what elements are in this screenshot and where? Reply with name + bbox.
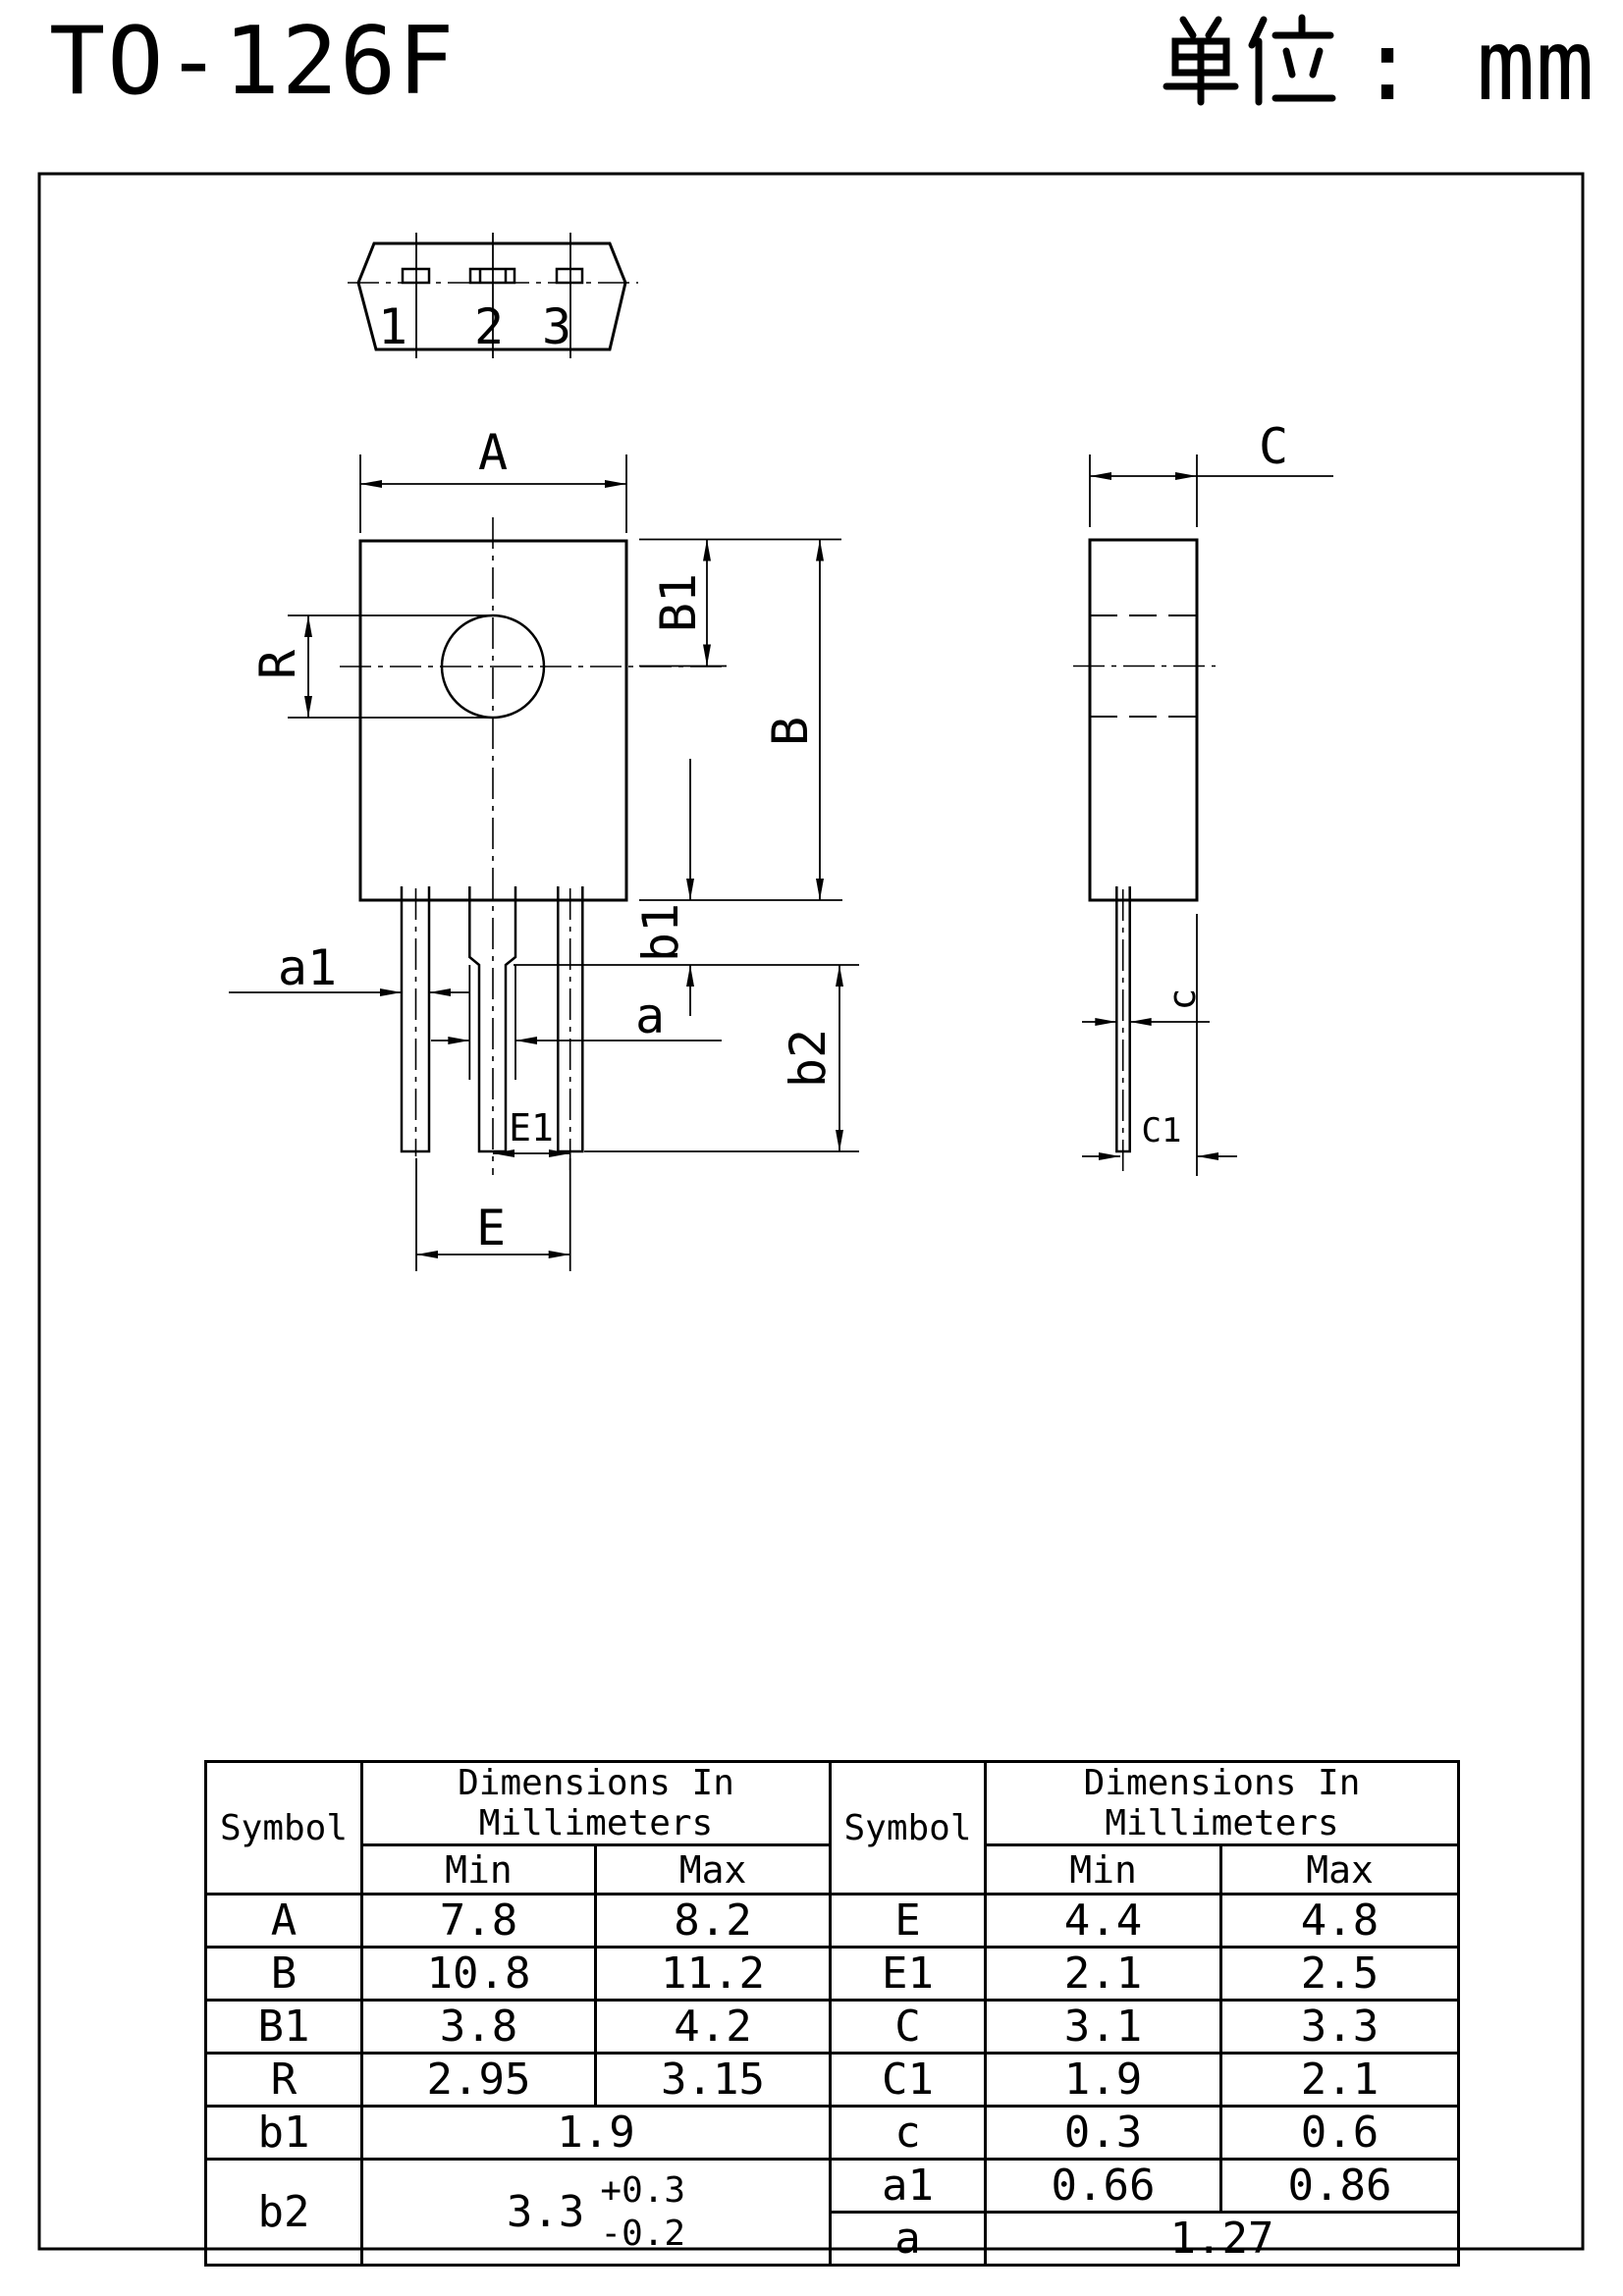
symbol-cell: A [206,1895,362,1948]
b2-tol-plus: +0.3 [600,2169,685,2212]
pin-2-number: 2 [474,298,504,355]
max-cell: 4.2 [596,2001,831,2054]
dim-a1: a1 [229,939,469,996]
table-header-row-1: Symbol Dimensions In Millimeters Symbol … [206,1762,1459,1845]
min-cell: 2.1 [986,1948,1221,2001]
max-cell: 3.3 [1221,2001,1459,2054]
pin-1-number: 1 [378,298,407,355]
max-cell: 11.2 [596,1948,831,2001]
table-row: R 2.95 3.15 C1 1.9 2.1 [206,2054,1459,2107]
top-view: 1 2 3 [348,233,638,358]
min-cell: 3.1 [986,2001,1221,2054]
dim-B1: B1 [639,540,841,667]
value-cell-b2: 3.3 +0.3 -0.2 [362,2160,831,2266]
dim-E-label: E [476,1200,506,1256]
b2-tol-minus: -0.2 [600,2213,685,2255]
min-cell: 1.9 [986,2054,1221,2107]
max-cell: 0.86 [1221,2160,1459,2213]
dim-E: E [416,1158,570,1271]
min-cell: 7.8 [362,1895,596,1948]
pin-3-number: 3 [542,298,571,355]
dim-C: C [1090,418,1333,527]
dim-a-label: a [635,988,665,1044]
dim-a: a [431,965,722,1080]
min-cell: 0.3 [986,2107,1221,2160]
front-view: A R B1 B [229,424,859,1271]
dim-A: A [360,424,626,533]
dim-b1: b1 [514,759,859,1016]
min-cell: 4.4 [986,1895,1221,1948]
dim-b1-label: b1 [632,903,689,962]
symbol-header-left: Symbol [206,1762,362,1895]
dim-c-label: c [1161,988,1204,1011]
max-cell: 0.6 [1221,2107,1459,2160]
min-cell: 0.66 [986,2160,1221,2213]
symbol-cell: b2 [206,2160,362,2266]
max-header-left: Max [596,1845,831,1895]
side-view: C c C1 [1073,418,1333,1176]
max-cell: 8.2 [596,1895,831,1948]
dim-A-label: A [478,424,508,481]
min-cell: 2.95 [362,2054,596,2107]
symbol-cell: B [206,1948,362,2001]
dim-C-label: C [1259,418,1288,475]
dim-a1-label: a1 [278,939,337,996]
dim-B-label: B [762,717,819,746]
dims-header-right: Dimensions In Millimeters [986,1762,1459,1845]
symbol-cell: R [206,2054,362,2107]
table-row: B 10.8 11.2 E1 2.1 2.5 [206,1948,1459,2001]
dim-R-label: R [249,649,306,679]
min-cell: 10.8 [362,1948,596,2001]
max-header-right: Max [1221,1845,1459,1895]
max-cell: 3.15 [596,2054,831,2107]
package-body-side [1090,540,1197,900]
dim-C1-label: C1 [1142,1111,1182,1150]
max-cell: 2.5 [1221,1948,1459,2001]
dim-E1-label: E1 [509,1106,554,1149]
datasheet-page: TO-126F 单位 : mm [0,0,1623,2296]
table-row: B1 3.8 4.2 C 3.1 3.3 [206,2001,1459,2054]
dimension-table: Symbol Dimensions In Millimeters Symbol … [204,1760,1460,2267]
value-cell: 1.27 [986,2213,1459,2266]
b2-nominal: 3.3 [507,2187,584,2237]
table-row: b2 3.3 +0.3 -0.2 a1 0.66 0.86 [206,2160,1459,2213]
symbol-header-right: Symbol [831,1762,986,1895]
value-cell: 1.9 [362,2107,831,2160]
symbol-cell: a1 [831,2160,986,2213]
max-cell: 4.8 [1221,1895,1459,1948]
dim-c: c [1082,988,1210,1022]
symbol-cell: a [831,2213,986,2266]
dim-B1-label: B1 [650,573,707,632]
min-cell: 3.8 [362,2001,596,2054]
symbol-cell: E [831,1895,986,1948]
table-row: A 7.8 8.2 E 4.4 4.8 [206,1895,1459,1948]
symbol-cell: E1 [831,1948,986,2001]
dim-b2-label: b2 [780,1029,837,1088]
min-header-right: Min [986,1845,1221,1895]
dims-header-left: Dimensions In Millimeters [362,1762,831,1845]
min-header-left: Min [362,1845,596,1895]
symbol-cell: C [831,2001,986,2054]
dim-C1: C1 [1082,1111,1237,1156]
symbol-cell: C1 [831,2054,986,2107]
symbol-cell: B1 [206,2001,362,2054]
table-row: b1 1.9 c 0.3 0.6 [206,2107,1459,2160]
dim-b2: b2 [584,965,859,1151]
symbol-cell: c [831,2107,986,2160]
max-cell: 2.1 [1221,2054,1459,2107]
symbol-cell: b1 [206,2107,362,2160]
